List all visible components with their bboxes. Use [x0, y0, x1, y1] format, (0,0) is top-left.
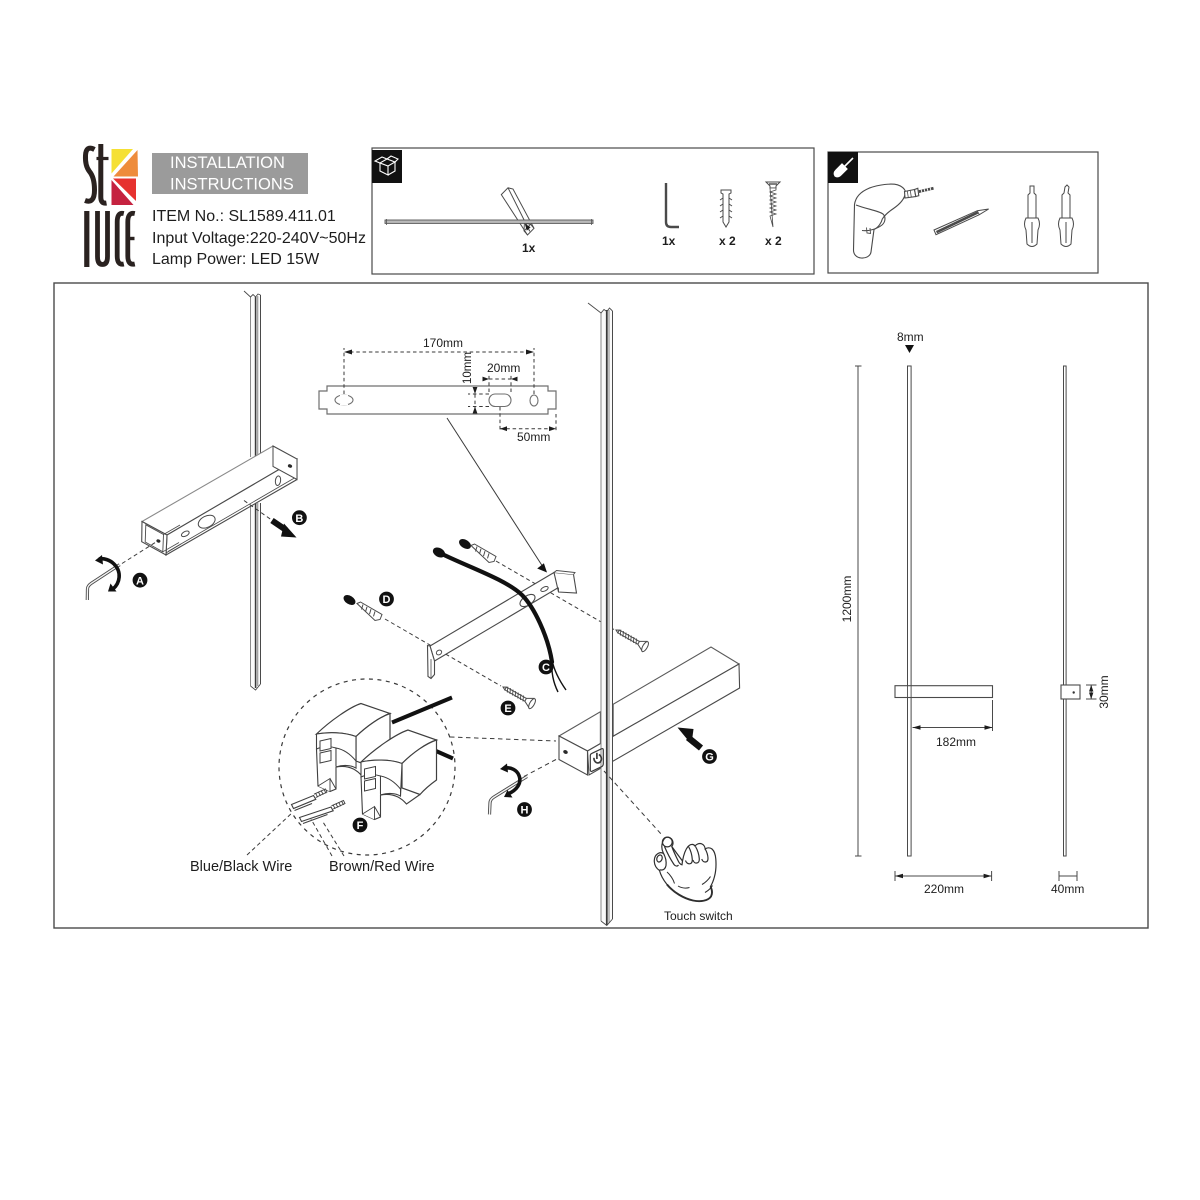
svg-text:Input Voltage:220-240V~50Hz: Input Voltage:220-240V~50Hz	[152, 230, 366, 247]
svg-text:Blue/Black Wire: Blue/Black Wire	[190, 859, 292, 875]
svg-text:x 2: x 2	[765, 234, 782, 248]
svg-text:C: C	[542, 662, 550, 674]
svg-text:1x: 1x	[662, 234, 676, 248]
svg-text:170mm: 170mm	[423, 336, 463, 350]
svg-text:B: B	[295, 513, 303, 525]
svg-text:ITEM No.: SL1589.411.01: ITEM No.: SL1589.411.01	[152, 208, 336, 225]
svg-text:8mm: 8mm	[897, 330, 924, 344]
svg-text:Lamp Power: LED 15W: Lamp Power: LED 15W	[152, 251, 320, 268]
svg-text:F: F	[357, 820, 364, 832]
svg-text:E: E	[504, 703, 511, 715]
svg-text:182mm: 182mm	[936, 735, 976, 749]
svg-text:H: H	[521, 805, 529, 817]
svg-text:INSTRUCTIONS: INSTRUCTIONS	[170, 176, 294, 194]
svg-text:1x: 1x	[522, 241, 536, 255]
svg-text:INSTALLATION: INSTALLATION	[170, 154, 285, 172]
svg-text:10mm: 10mm	[462, 352, 474, 384]
svg-text:220mm: 220mm	[924, 882, 964, 896]
svg-text:Touch switch: Touch switch	[664, 909, 733, 923]
svg-text:1200mm: 1200mm	[840, 576, 854, 623]
svg-text:Brown/Red Wire: Brown/Red Wire	[329, 859, 435, 875]
svg-text:A: A	[136, 575, 144, 587]
svg-text:50mm: 50mm	[517, 430, 550, 444]
svg-text:D: D	[383, 594, 391, 606]
svg-text:G: G	[705, 752, 714, 764]
svg-text:x 2: x 2	[719, 234, 736, 248]
svg-text:20mm: 20mm	[487, 361, 520, 375]
svg-text:40mm: 40mm	[1051, 882, 1084, 896]
svg-text:30mm: 30mm	[1097, 675, 1111, 708]
